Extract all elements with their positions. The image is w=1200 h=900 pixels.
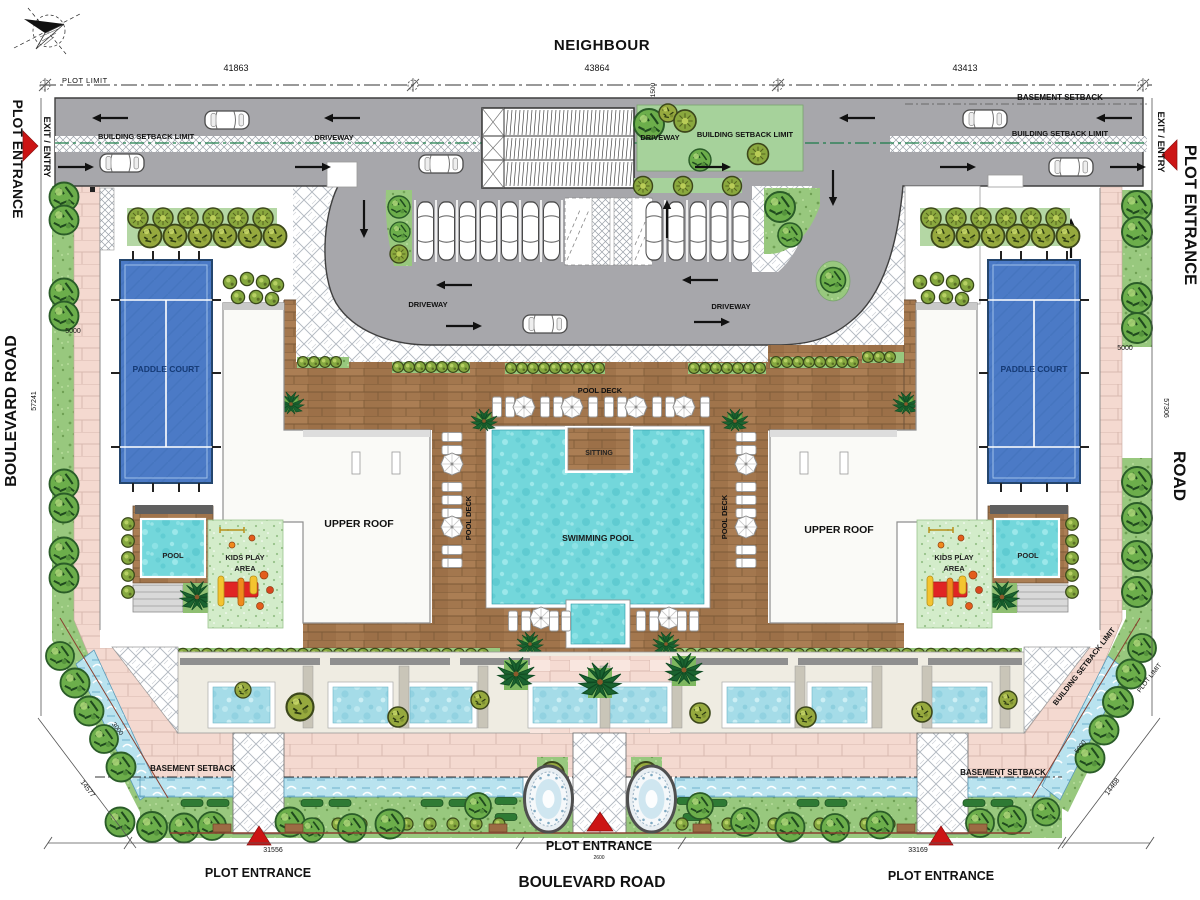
- svg-text:PADDLE COURT: PADDLE COURT: [1001, 364, 1069, 374]
- svg-text:BASEMENT SETBACK: BASEMENT SETBACK: [150, 764, 236, 773]
- svg-text:41863: 41863: [223, 63, 248, 73]
- svg-text:BASEMENT SETBACK: BASEMENT SETBACK: [960, 768, 1046, 777]
- svg-text:EXIT / ENTRY: EXIT / ENTRY: [41, 117, 52, 179]
- svg-text:DRIVEWAY: DRIVEWAY: [711, 302, 750, 311]
- svg-text:BUILDING SETBACK LIMIT: BUILDING SETBACK LIMIT: [1012, 129, 1109, 138]
- svg-text:EXIT / ENTRY: EXIT / ENTRY: [1155, 112, 1166, 174]
- svg-text:SITTING: SITTING: [585, 450, 613, 457]
- svg-text:31556: 31556: [263, 847, 283, 854]
- svg-text:DRIVEWAY: DRIVEWAY: [408, 300, 447, 309]
- svg-text:AREA: AREA: [234, 564, 256, 573]
- svg-text:PLOT ENTRANCE: PLOT ENTRANCE: [10, 100, 26, 219]
- svg-text:BUILDING SETBACK LIMIT: BUILDING SETBACK LIMIT: [98, 132, 195, 141]
- svg-text:DRIVEWAY: DRIVEWAY: [314, 133, 353, 142]
- svg-text:PLOT LIMIT: PLOT LIMIT: [62, 76, 108, 85]
- svg-text:POOL DECK: POOL DECK: [578, 386, 623, 395]
- svg-text:43413: 43413: [952, 63, 977, 73]
- svg-text:DRIVEWAY: DRIVEWAY: [640, 133, 679, 142]
- svg-text:POOL DECK: POOL DECK: [464, 495, 473, 540]
- svg-text:BUILDING SETBACK LIMIT: BUILDING SETBACK LIMIT: [697, 130, 794, 139]
- svg-text:POOL: POOL: [162, 551, 184, 560]
- svg-text:UPPER ROOF: UPPER ROOF: [324, 518, 394, 530]
- svg-text:KIDS PLAY: KIDS PLAY: [225, 553, 264, 562]
- svg-text:57241: 57241: [31, 391, 38, 411]
- svg-text:KIDS PLAY: KIDS PLAY: [934, 553, 973, 562]
- svg-text:33169: 33169: [908, 847, 928, 854]
- svg-text:PADDLE COURT: PADDLE COURT: [133, 364, 201, 374]
- svg-text:2600: 2600: [593, 855, 604, 861]
- svg-text:BASEMENT SETBACK: BASEMENT SETBACK: [1017, 93, 1103, 102]
- svg-text:1500: 1500: [650, 82, 657, 97]
- svg-text:57306: 57306: [1162, 398, 1169, 418]
- svg-text:POOL DECK: POOL DECK: [720, 494, 729, 539]
- svg-text:43864: 43864: [584, 63, 609, 73]
- svg-text:5000: 5000: [65, 328, 81, 335]
- svg-text:PLOT ENTRANCE: PLOT ENTRANCE: [205, 866, 311, 880]
- svg-text:NEIGHBOUR: NEIGHBOUR: [554, 37, 650, 54]
- svg-text:UPPER ROOF: UPPER ROOF: [804, 524, 874, 536]
- svg-text:ROAD: ROAD: [1170, 451, 1189, 501]
- svg-text:POOL: POOL: [1017, 551, 1039, 560]
- svg-text:BOULEVARD ROAD: BOULEVARD ROAD: [3, 335, 20, 487]
- svg-text:BOULEVARD ROAD: BOULEVARD ROAD: [519, 874, 666, 891]
- svg-text:PLOT ENTRANCE: PLOT ENTRANCE: [888, 869, 994, 883]
- svg-text:AREA: AREA: [943, 564, 965, 573]
- svg-text:5000: 5000: [1117, 345, 1133, 352]
- svg-text:PLOT ENTRANCE: PLOT ENTRANCE: [546, 839, 652, 853]
- svg-text:SWIMMING POOL: SWIMMING POOL: [562, 533, 634, 543]
- svg-text:PLOT ENTRANCE: PLOT ENTRANCE: [1181, 145, 1199, 285]
